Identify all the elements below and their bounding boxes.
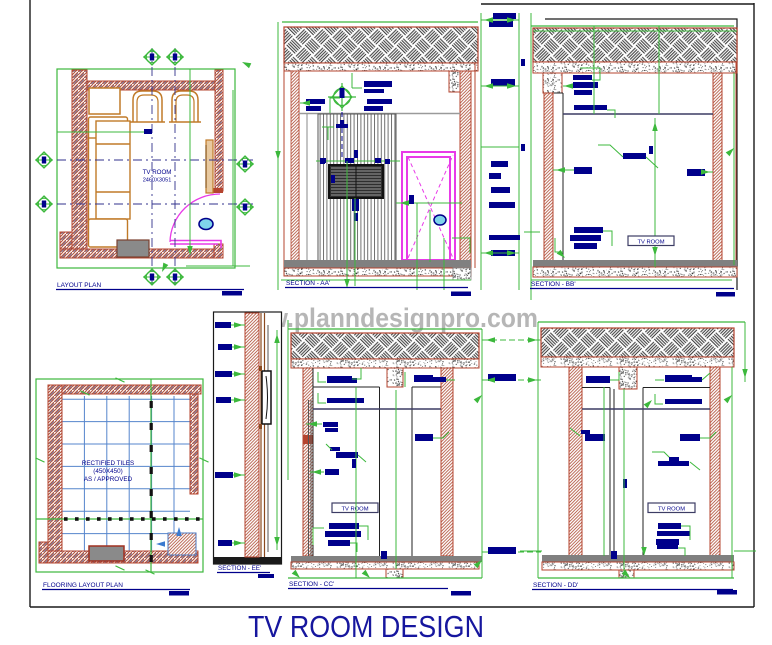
- svg-text:SECTION - CC': SECTION - CC': [289, 581, 334, 588]
- svg-text:TV ROOM: TV ROOM: [341, 507, 368, 513]
- svg-text:FLOORING LAYOUT PLAN: FLOORING LAYOUT PLAN: [43, 582, 123, 589]
- svg-text:TV ROOM DESIGN: TV ROOM DESIGN: [248, 610, 484, 644]
- svg-text:SECTION - BB': SECTION - BB': [531, 281, 576, 288]
- svg-text:RECTIFIED TILES: RECTIFIED TILES: [82, 460, 134, 467]
- svg-text:TV ROOM: TV ROOM: [637, 240, 664, 246]
- svg-text:(450X450): (450X450): [93, 468, 122, 475]
- svg-text:TV ROOM: TV ROOM: [143, 169, 172, 176]
- svg-text:TV ROOM: TV ROOM: [658, 507, 685, 513]
- svg-text:LAYOUT PLAN: LAYOUT PLAN: [57, 282, 101, 289]
- svg-text:SECTION - AA': SECTION - AA': [286, 280, 330, 287]
- svg-text:2460X3051: 2460X3051: [143, 178, 172, 184]
- svg-text:SECTION - DD': SECTION - DD': [533, 582, 578, 589]
- svg-text:AS / APPROVED: AS / APPROVED: [84, 476, 133, 483]
- svg-text:SECTION - EE': SECTION - EE': [218, 565, 261, 572]
